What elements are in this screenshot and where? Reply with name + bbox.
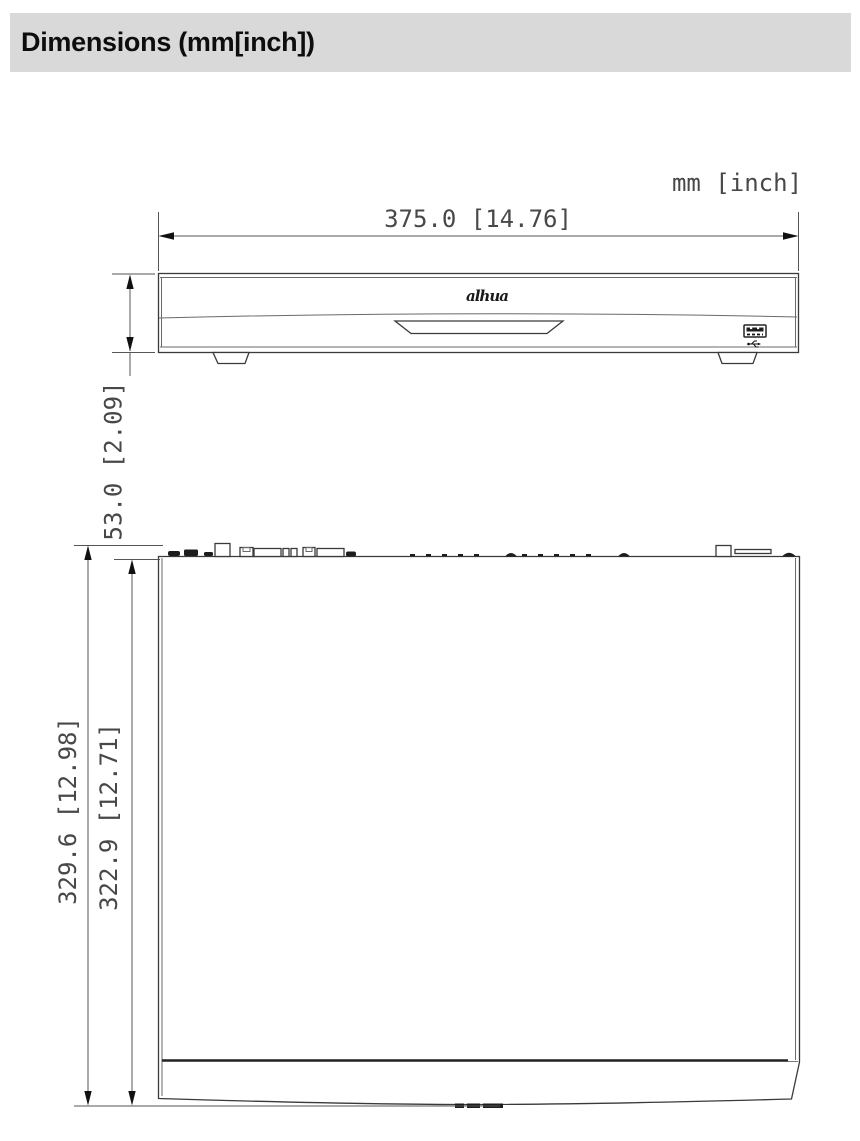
- arrow-down-icon: [128, 1091, 135, 1106]
- arrow-left-icon: [159, 232, 175, 240]
- usb-connector-tongue: [747, 328, 764, 332]
- right-foot: [718, 353, 757, 364]
- height-dimension-label: 53.0 [2.09]: [100, 382, 128, 541]
- connector-shape: [291, 549, 297, 557]
- connector-shape: [184, 550, 198, 557]
- front-panel-outline: [159, 274, 799, 353]
- connector-shape: [283, 549, 289, 557]
- arrow-up-icon: [126, 275, 133, 290]
- top-view-outline: [159, 557, 800, 1105]
- connector-shape: [716, 546, 731, 557]
- rear-connectors: [168, 544, 796, 557]
- screw-mark: [410, 554, 415, 556]
- width-dimension-label: 375.0 [14.76]: [384, 205, 572, 233]
- arrow-up-icon: [84, 546, 91, 561]
- bump-shape: [505, 553, 517, 557]
- dahua-logo: alhua: [466, 287, 508, 305]
- screw-mark: [538, 554, 543, 556]
- bump-shape: [782, 553, 796, 557]
- units-label: mm [inch]: [672, 169, 802, 197]
- bump-shape: [618, 553, 630, 557]
- left-foot: [213, 353, 249, 364]
- depth-inner-dimension: 322.9 [12.71]: [95, 560, 160, 1106]
- screw-mark: [554, 554, 559, 556]
- connector-shape: [204, 552, 213, 556]
- dimensions-page: Dimensions (mm[inch]) mm [inch] 375.0 [1…: [0, 0, 860, 1141]
- connector-shape: [346, 552, 356, 557]
- screw-mark: [426, 554, 431, 556]
- connector-shape: [168, 551, 180, 556]
- front-view: alhua: [159, 274, 799, 364]
- top-view: [159, 544, 800, 1109]
- screw-mark: [586, 554, 591, 556]
- screw-mark: [442, 554, 447, 556]
- usb-pin: [757, 328, 759, 330]
- dimension-drawing: mm [inch] 375.0 [14.76] alhua: [0, 0, 860, 1141]
- depth-outer-dimension-label: 329.6 [12.98]: [54, 717, 82, 905]
- height-dimension: 53.0 [2.09]: [100, 274, 156, 540]
- screw-mark: [458, 554, 463, 556]
- connector-shape: [215, 544, 230, 557]
- depth-inner-dimension-label: 322.9 [12.71]: [95, 723, 123, 911]
- front-handle-recess: [395, 321, 563, 334]
- screw-mark: [474, 554, 479, 556]
- arrow-up-icon: [128, 560, 135, 575]
- screw-mark: [570, 554, 575, 556]
- arrow-right-icon: [783, 232, 799, 240]
- usb-pin: [750, 328, 752, 330]
- connector-shape: [317, 549, 344, 557]
- connector-shape: [254, 549, 281, 557]
- screw-mark: [522, 554, 527, 556]
- width-dimension: 375.0 [14.76]: [159, 205, 799, 271]
- arrow-down-icon: [84, 1091, 91, 1106]
- connector-shape: [735, 550, 771, 554]
- arrow-down-icon: [126, 337, 133, 352]
